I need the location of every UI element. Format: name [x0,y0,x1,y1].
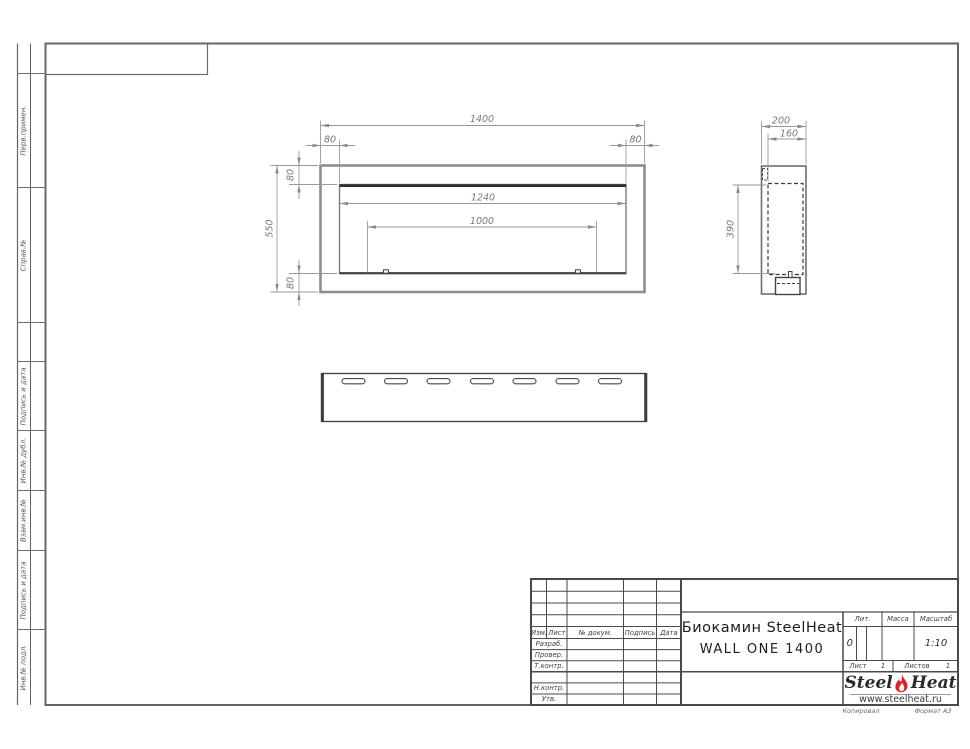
format-label: Формат А3 [903,706,963,716]
tb-sheet-label: Лист [845,661,871,672]
tb-row-razrab: Разраб. [531,639,567,650]
dim-front-top-left: 80 [324,135,336,146]
steelheat-logo: Steel Heat www.steelheat.ru [843,672,958,705]
drawing-sheet: 1400 80 80 80 550 80 1240 1000 [0,0,970,749]
tb-lit-value: 0 [843,627,857,661]
burner-block [776,278,801,295]
tb-row-tkontr: Т.контр. [531,661,567,672]
dim-front-height: 550 [265,219,276,237]
tb-lit-label: Лит. [843,612,882,627]
tb-scale-label: Масштаб [914,612,958,627]
margin-label-sprav-no: Справ.№ [18,195,31,315]
bottom-view [322,374,647,422]
tb-mass-label: Масса [882,612,914,627]
copied-label: Копировал [830,706,892,716]
dim-burner-width: 1000 [470,216,494,227]
tb-sheets-value: 1 [941,661,955,672]
dim-side-opening-height: 390 [726,220,737,238]
tb-row-utv: Утв. [531,694,567,705]
dim-front-width: 1400 [470,114,494,125]
tb-header-data: Дата [657,627,682,639]
logo-url: www.steelheat.ru [850,694,951,705]
tb-header-podpis: Подпись [624,627,657,639]
flame-icon [894,674,910,694]
tb-sheets-label: Листов [897,661,937,672]
tb-header-doc: № докум. [567,627,624,639]
logo-steel-text: Steel [845,675,893,692]
front-view [321,166,645,293]
burner-tab-left [384,270,389,273]
side-view [762,166,807,295]
tb-header-izm: Изм. [531,627,547,639]
tb-sheet-value: 1 [876,661,890,672]
tb-row-nkontr: Н.контр. [531,683,567,694]
dim-opening-width: 1240 [471,193,495,204]
tb-scale-value: 1:10 [914,627,958,661]
dim-side-inner-depth: 160 [780,129,798,140]
dim-front-left-bottom: 80 [286,277,297,289]
doc-title-line2: WALL ONE 1400 [681,639,843,661]
tb-header-list: Лист [547,627,568,639]
doc-title-line1: Биокамин SteelHeat [681,617,843,639]
margin-label-perv-primen: Перв.примен. [18,71,31,191]
dim-front-left-top: 80 [286,169,297,181]
dim-front-top-right: 80 [629,135,641,146]
tb-row-prover: Провер. [531,650,567,661]
margin-label-inv-podl: Инв.№ подл. [18,607,31,727]
dim-side-depth: 200 [772,116,790,127]
designation-box [46,44,208,75]
logo-heat-text: Heat [911,675,957,692]
burner-tab-right [576,270,581,273]
burner-notch [789,272,793,278]
